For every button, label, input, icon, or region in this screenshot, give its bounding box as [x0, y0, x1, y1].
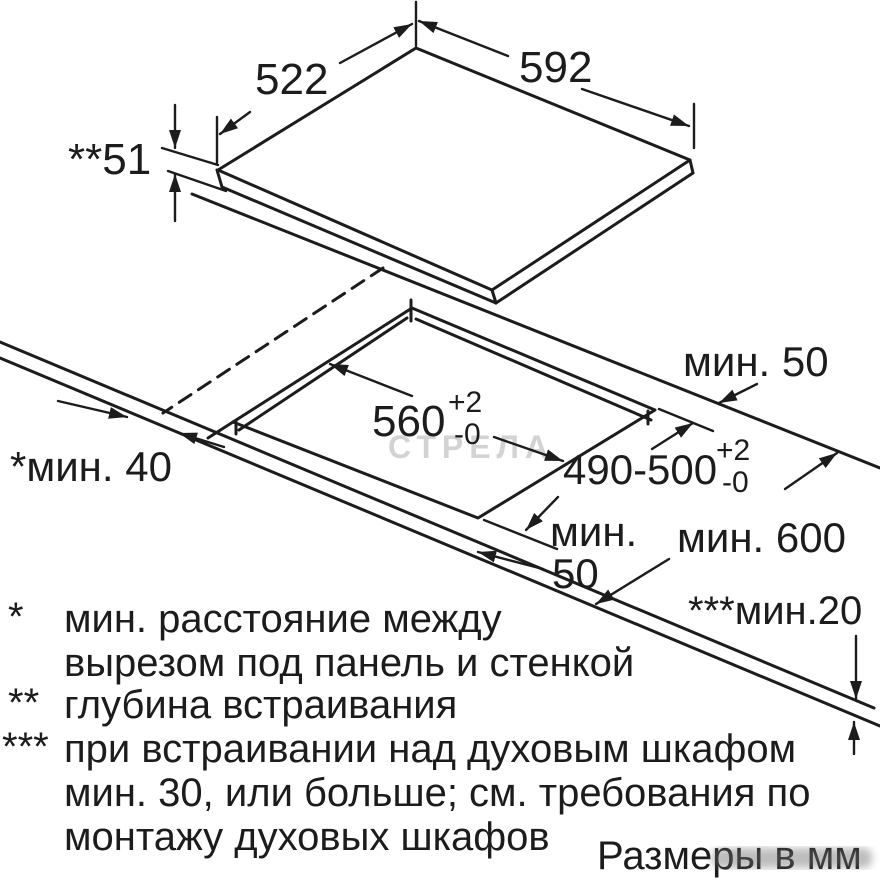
extension-line	[162, 148, 218, 165]
footnote-3-line1: при встраивании над духовым шкафом	[64, 727, 796, 771]
footnote-1-line2: вырезом под панель и стенкой	[64, 641, 634, 685]
diagram-canvas: СТРЕЛА 592 522 **51	[0, 0, 880, 880]
dim-522-label: 522	[255, 55, 328, 104]
clearance-min40-wall: *мин. 40	[10, 401, 224, 490]
dim-522: 522	[217, 24, 412, 163]
min50-front-label-line1: мин.	[550, 508, 637, 555]
dim-490-500-tolerance-minus: -0	[722, 466, 749, 499]
arrow-line	[419, 21, 508, 56]
arrow-line	[596, 559, 669, 604]
clearance-min50-back: мин. 50	[683, 338, 829, 403]
dim-560-tolerance-minus: -0	[454, 418, 481, 451]
dim-490-500-tolerance-plus: +2	[716, 434, 750, 467]
watermark-smudge	[712, 848, 872, 868]
counter-back-edge	[192, 194, 880, 468]
footnote-2-line1: глубина встраивания	[64, 683, 457, 727]
dim-592-label: 592	[519, 43, 592, 92]
arrow-line	[582, 89, 689, 126]
dim-592: 592	[416, 2, 694, 148]
dim-51-label: **51	[68, 135, 151, 184]
arrow-line	[719, 384, 757, 403]
panel-right-lip-edge	[496, 173, 693, 303]
min600-label: мин. 600	[677, 514, 846, 561]
installation-diagram: СТРЕЛА 592 522 **51	[0, 0, 880, 880]
arrow-line	[220, 112, 250, 134]
dim-490-500-label: 490-500	[563, 446, 717, 493]
footnote-1-line1: мин. расстояние между	[64, 597, 502, 641]
footnote-3-line3: монтажу духовых шкафов	[64, 815, 550, 859]
min20-label: ***мин.20	[688, 589, 862, 633]
panel-right-corner-edge	[690, 160, 693, 173]
arrow-line	[785, 453, 837, 489]
dim-560-tolerance-plus: +2	[448, 386, 482, 419]
arrow-line	[179, 433, 224, 447]
footnote-3-line2: мин. 30, или больше; см. требования по	[64, 771, 810, 815]
dim-51: **51	[68, 105, 226, 221]
footnote-3-marker: ***	[2, 725, 49, 769]
min50-back-label: мин. 50	[683, 338, 829, 385]
projection-dashed-line	[163, 268, 383, 413]
min50-front-label-line2: 50	[552, 550, 599, 597]
footnote-1-marker: *	[8, 595, 24, 639]
arrow-line	[330, 364, 412, 396]
min40-label: *мин. 40	[10, 443, 172, 490]
footnotes: * мин. расстояние между вырезом под пане…	[2, 595, 810, 859]
extension-line	[484, 520, 557, 549]
arrow-line	[58, 401, 127, 417]
footnote-2-marker: **	[8, 681, 39, 725]
dim-560-label: 560	[372, 397, 445, 446]
